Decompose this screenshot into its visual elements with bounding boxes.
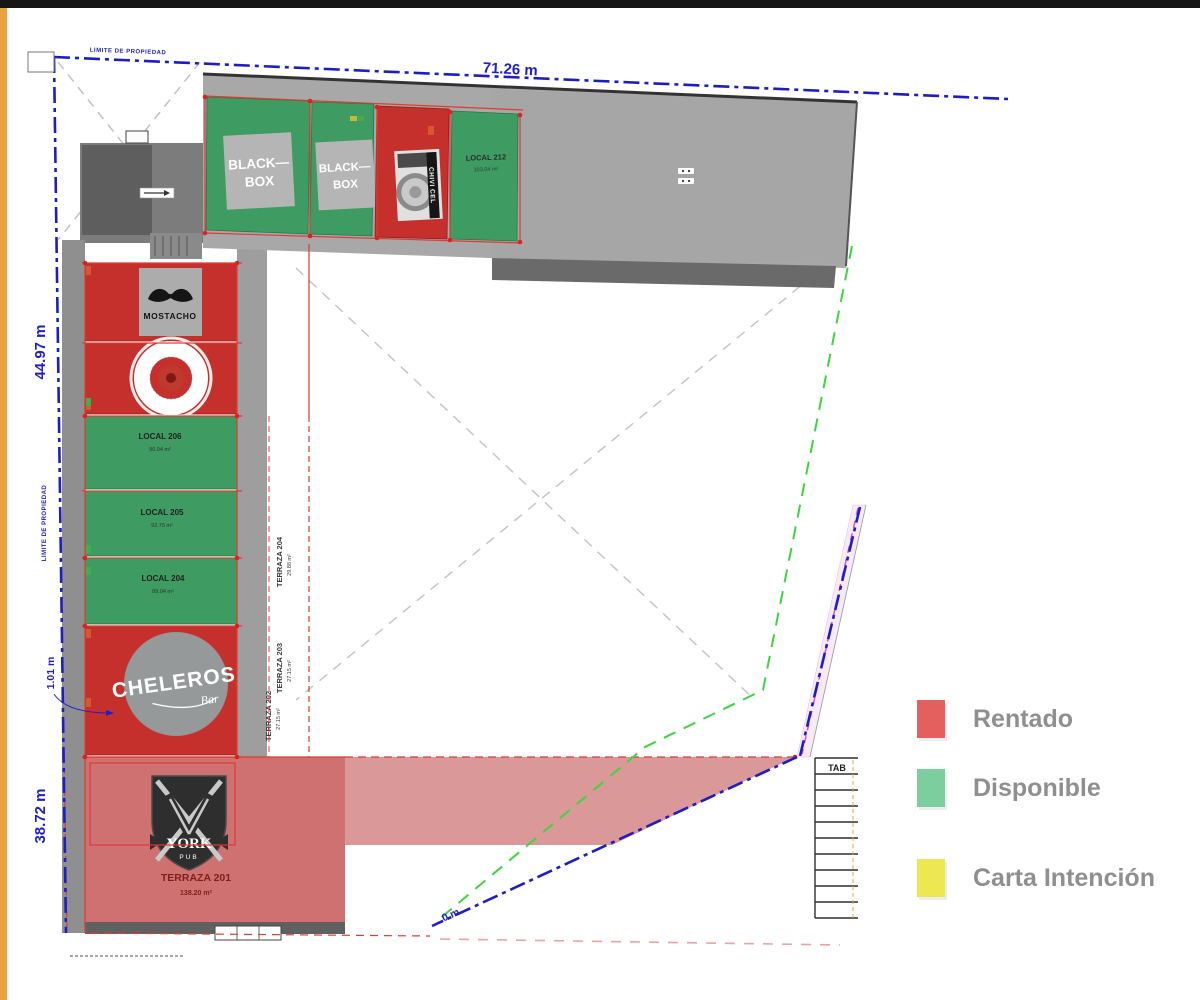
unit-blackbox-1: BLACK— BOX	[206, 97, 310, 234]
dim-left-lower-label: 38.72 m	[32, 788, 49, 843]
york-shield-logo: YORK PUB	[150, 776, 228, 870]
leasing-site-plan-page: BLACK— BOX BLACK— BOX CHIVI CEL	[0, 0, 1200, 1000]
terraza-203-area: 27.15 m²	[287, 660, 293, 682]
local-204-area: 89.04 m²	[152, 589, 174, 595]
chivicel-logo: CHIVI CEL	[394, 149, 443, 221]
door-marker	[350, 116, 357, 121]
terraza-204-label: TERRAZA 204	[275, 536, 284, 587]
unit-circular-badge	[85, 338, 237, 418]
york-label: YORK	[167, 836, 212, 852]
local-205-area: 92.75 m²	[151, 523, 173, 529]
dim-top-label: 71.26 m	[482, 60, 538, 80]
york-sub-label: PUB	[179, 854, 198, 861]
mostacho-label: MOSTACHO	[144, 311, 197, 321]
unit-blackbox-2: BLACK— BOX	[310, 102, 376, 236]
local-205-label: LOCAL 205	[141, 508, 185, 517]
terraza-201-label: TERRAZA 201	[161, 872, 231, 884]
cheleros-sub-label: Bar	[200, 691, 220, 707]
door-marker	[358, 116, 364, 121]
circular-badge-logo	[131, 338, 211, 418]
terraza-202-area: 27.15 m²	[276, 708, 282, 730]
property-line-top-label: LIMITE DE PROPIEDAD	[90, 48, 167, 57]
service-building	[80, 131, 205, 259]
blackbox2-text-2: BOX	[333, 178, 359, 191]
easement-band	[797, 505, 866, 757]
unit-local-206: LOCAL 206 96.04 m²	[85, 416, 237, 489]
blackbox1-text-1: BLACK—	[228, 154, 290, 172]
dim-left-mid-label: 1.01 m	[45, 657, 57, 690]
unit-local-204: LOCAL 204 89.04 m²	[85, 558, 237, 624]
dim-left-upper-label: 44.97 m	[32, 324, 49, 379]
terraza-203-label: TERRAZA 203	[275, 643, 284, 693]
mostacho-logo	[139, 268, 202, 336]
unit-chivicel: CHIVI CEL	[375, 106, 449, 239]
areas-table: TAB	[815, 758, 858, 918]
terraza-201-area: 138.20 m²	[180, 890, 213, 897]
local-212-label: LOCAL 212	[466, 152, 507, 162]
local-204-label: LOCAL 204	[142, 574, 186, 583]
dim-bottom-partial-label: 0 m	[440, 906, 461, 924]
unit-local-205: LOCAL 205 92.75 m²	[85, 491, 237, 556]
site-plan: BLACK— BOX BLACK— BOX CHIVI CEL	[0, 0, 1200, 1000]
unit-local-212: LOCAL 212 103.04 m²	[450, 111, 518, 241]
blackbox1-text-2: BOX	[245, 173, 275, 190]
unit-mostacho: MOSTACHO	[85, 263, 237, 341]
inner-walkway	[237, 248, 267, 757]
scale-bar	[215, 926, 281, 940]
local-212-area: 103.04 m²	[473, 167, 498, 174]
terraza-strip: TERRAZA 204 29.88 m² TERRAZA 203 27.15 m…	[264, 536, 293, 741]
terraza-204-area: 29.88 m²	[287, 554, 293, 576]
local-206-label: LOCAL 206	[139, 432, 183, 441]
courtyard-cross	[296, 252, 842, 700]
local-206-area: 96.04 m²	[149, 447, 171, 453]
unit-cheleros: CHELEROS Bar	[85, 626, 240, 755]
property-line-left-label: LIMITE DE PROPIEDAD	[42, 485, 48, 562]
boundary-marker-box	[28, 52, 54, 72]
areas-table-header: TAB	[828, 763, 846, 773]
door-marker	[428, 126, 434, 135]
terraza-band	[345, 757, 795, 845]
